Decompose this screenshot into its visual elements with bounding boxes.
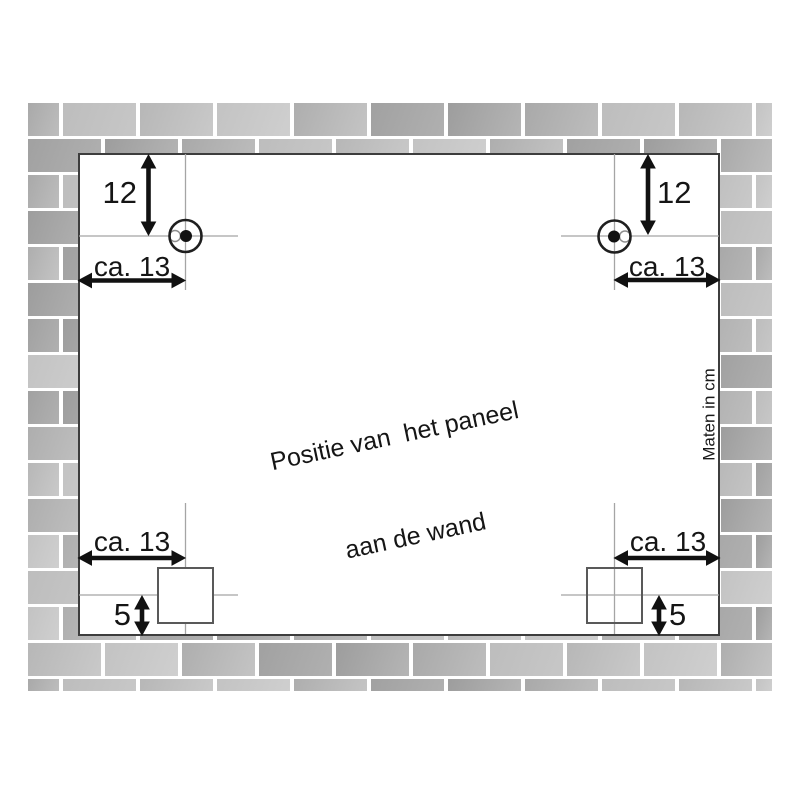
dim-label-bottom-right-vertical: 5 [669,599,707,632]
mounting-diagram: 12 12 ca. 13 ca. 13 ca. 13 ca. 13 5 5 Po… [0,0,800,800]
brick [602,679,675,691]
brick [294,103,367,136]
brick [371,103,444,136]
brick [756,175,772,208]
brick [140,679,213,691]
brick [679,679,752,691]
brick [756,679,772,691]
brick [721,211,772,244]
brick [28,103,59,136]
brick [217,679,290,691]
brick [756,103,772,136]
brick [525,679,598,691]
brick [721,139,772,172]
brick [28,175,59,208]
dim-label-top-left-horizontal: ca. 13 [82,252,182,281]
brick [28,247,59,280]
dim-label-top-right-horizontal: ca. 13 [617,252,717,281]
brick [28,535,59,568]
brick [448,679,521,691]
brick [756,535,772,568]
brick [140,103,213,136]
panel-position-note-line2: aan de wand [256,486,576,586]
panel-position-note-line1: Positie van het paneel [234,386,554,486]
brick [28,391,59,424]
brick [105,643,178,676]
brick [490,643,563,676]
brick [602,103,675,136]
brick [182,643,255,676]
brick [28,463,59,496]
brick [336,643,409,676]
brick [756,319,772,352]
brick [413,643,486,676]
brick [63,103,136,136]
dim-label-top-left-vertical: 12 [95,177,137,210]
dim-label-bottom-left-horizontal: ca. 13 [82,527,182,556]
brick [28,643,101,676]
brick [679,103,752,136]
brick [294,679,367,691]
brick [28,679,59,691]
brick [28,607,59,640]
brick [371,679,444,691]
brick [756,607,772,640]
brick [721,283,772,316]
brick [217,103,290,136]
brick [756,391,772,424]
brick [28,319,59,352]
brick [644,643,717,676]
dim-label-top-right-vertical: 12 [657,177,699,210]
brick [721,355,772,388]
brick [63,679,136,691]
brick [448,103,521,136]
brick [567,643,640,676]
units-note: Maten in cm [699,355,720,475]
brick [756,247,772,280]
brick [525,103,598,136]
brick [721,643,772,676]
brick [721,571,772,604]
brick [721,427,772,460]
dim-label-bottom-left-vertical: 5 [93,599,131,632]
brick [756,463,772,496]
brick [721,499,772,532]
dim-label-bottom-right-horizontal: ca. 13 [618,527,718,556]
